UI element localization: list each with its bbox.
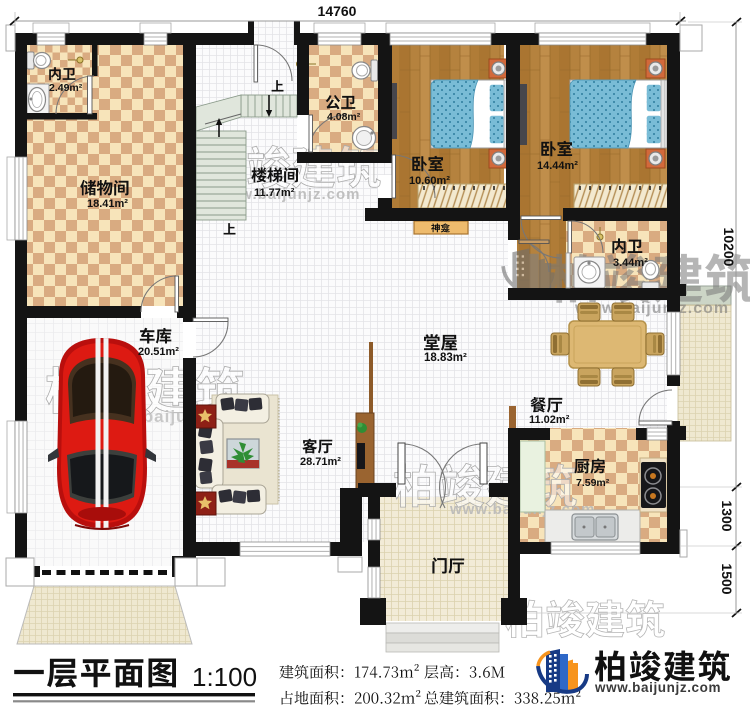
svg-text:10.60m²: 10.60m² — [409, 175, 450, 187]
svg-text:20.51m²: 20.51m² — [138, 346, 179, 358]
svg-text:18.83m²: 18.83m² — [424, 352, 467, 364]
svg-text:4.08m²: 4.08m² — [327, 111, 361, 123]
svg-text:11.02m²: 11.02m² — [529, 414, 570, 426]
svg-text:14760: 14760 — [318, 3, 357, 19]
svg-text:18.41m²: 18.41m² — [87, 198, 128, 210]
svg-text:3.44m²: 3.44m² — [613, 257, 648, 269]
svg-text:14.44m²: 14.44m² — [537, 160, 578, 172]
svg-text:1:100: 1:100 — [192, 662, 257, 692]
svg-text:28.71m²: 28.71m² — [300, 456, 341, 468]
svg-text:11.77m²: 11.77m² — [254, 187, 295, 199]
svg-text:10200: 10200 — [721, 228, 737, 267]
svg-text:2.49m²: 2.49m² — [49, 82, 83, 94]
svg-text:1500: 1500 — [719, 563, 735, 594]
svg-text:www.baijunjz.com: www.baijunjz.com — [594, 680, 721, 695]
svg-text:7.59m²: 7.59m² — [576, 477, 610, 489]
svg-text:1300: 1300 — [719, 500, 735, 531]
